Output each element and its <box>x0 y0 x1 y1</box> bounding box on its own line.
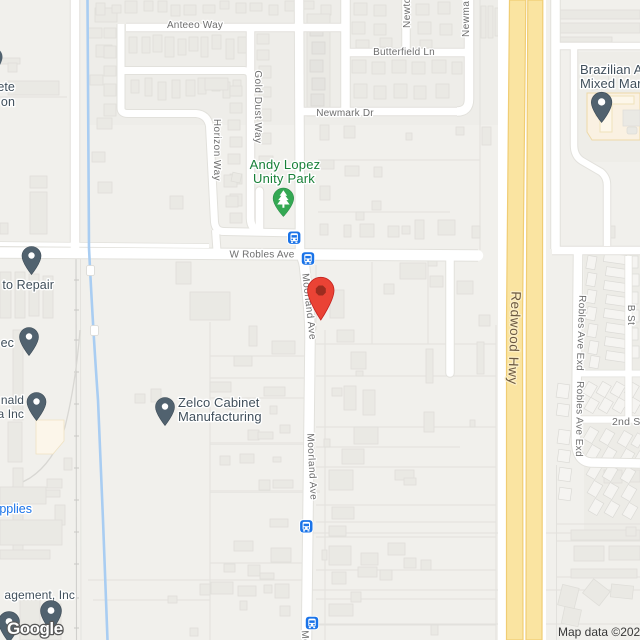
svg-text:Andy Lopez: Andy Lopez <box>250 157 321 172</box>
svg-text:Newmark Av: Newmark Av <box>461 0 472 37</box>
svg-text:agement, Inc: agement, Inc <box>4 588 75 602</box>
svg-text:W Robles Ave: W Robles Ave <box>229 250 294 261</box>
svg-text:to Repair: to Repair <box>2 278 54 292</box>
svg-text:Newton Wa: Newton Wa <box>402 0 413 28</box>
svg-text:Map data ©2021: Map data ©2021 <box>558 625 640 639</box>
svg-text:Google: Google <box>7 619 63 638</box>
svg-text:Unity Park: Unity Park <box>253 171 315 186</box>
svg-text:nald: nald <box>1 393 24 407</box>
svg-text:Brazilian Am: Brazilian Am <box>580 62 640 77</box>
svg-text:Anteeo Way: Anteeo Way <box>167 20 223 31</box>
svg-text:on: on <box>1 95 15 109</box>
svg-text:Manufacturing: Manufacturing <box>178 409 262 424</box>
svg-text:B St: B St <box>625 305 636 326</box>
svg-text:Horizon Way: Horizon Way <box>211 119 222 181</box>
svg-text:Butterfield Ln: Butterfield Ln <box>373 47 435 58</box>
svg-text:Mixed Mar: Mixed Mar <box>580 76 640 91</box>
svg-text:Supplies: Supplies <box>0 502 32 516</box>
svg-text:Newmark Dr: Newmark Dr <box>316 108 374 119</box>
svg-text:ec: ec <box>1 336 14 350</box>
svg-text:Robles Ave Exd: Robles Ave Exd <box>573 381 585 457</box>
svg-text:a Inc: a Inc <box>0 407 24 421</box>
svg-text:Gold Dust Way: Gold Dust Way <box>252 70 263 143</box>
svg-text:ete: ete <box>0 80 15 94</box>
svg-text:Zelco Cabinet: Zelco Cabinet <box>178 395 260 410</box>
svg-text:2nd Stre: 2nd Stre <box>612 416 640 428</box>
